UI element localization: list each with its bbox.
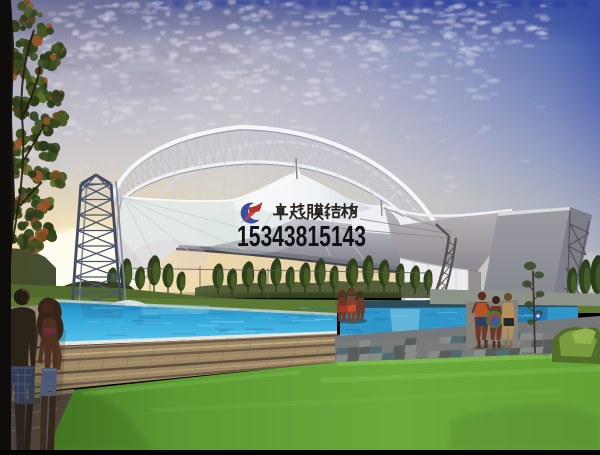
svg-text:15343815143: 15343815143 — [237, 221, 366, 253]
